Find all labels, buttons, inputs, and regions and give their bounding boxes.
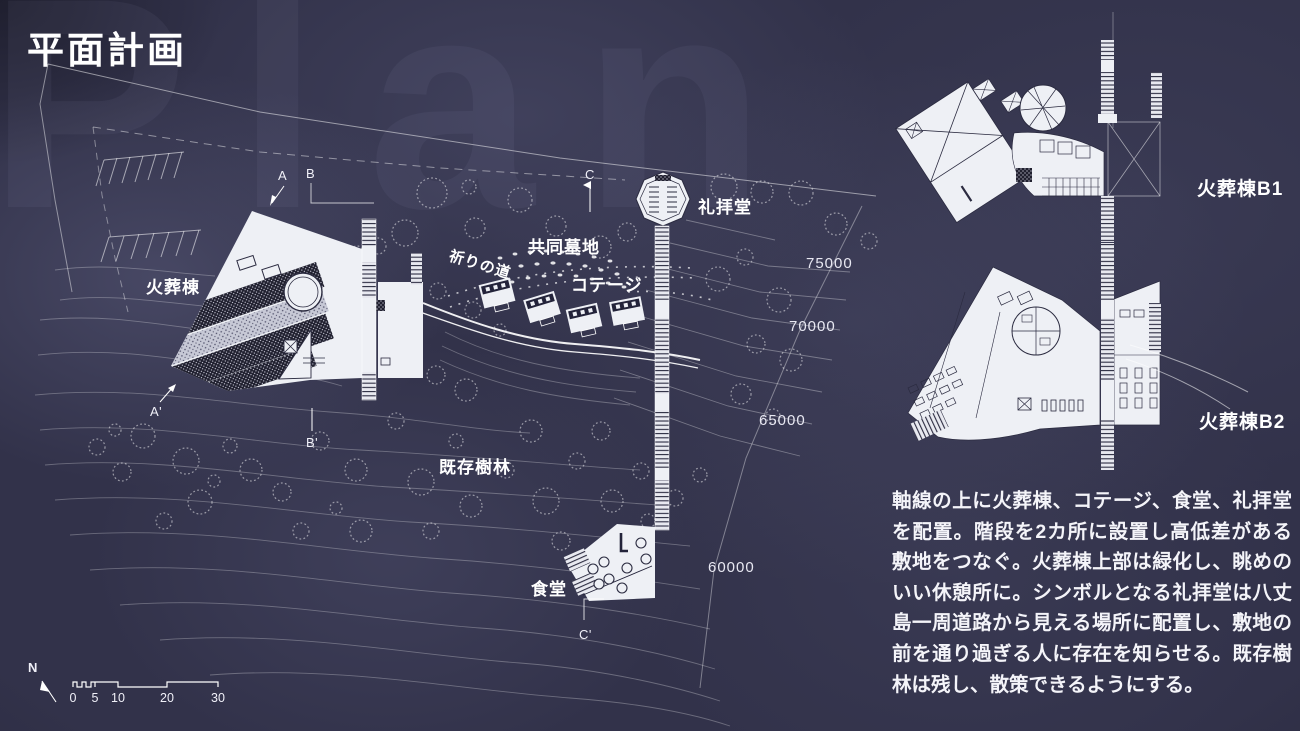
scale-tick-20: 20 — [160, 691, 174, 705]
label-existing-forest: 既存樹林 — [439, 457, 511, 477]
contour-70000: 70000 — [789, 318, 836, 335]
scale-tick-10: 10 — [111, 691, 125, 705]
site-boundary-lines — [40, 64, 876, 688]
contour-75000: 75000 — [806, 255, 853, 272]
section-c: C — [585, 167, 595, 182]
label-prayer-path: 祈りの道 — [447, 247, 513, 283]
contour-60000: 60000 — [708, 559, 755, 576]
crematorium-building — [141, 211, 423, 421]
scale-tick-0: 0 — [70, 691, 77, 705]
section-b: B — [306, 166, 315, 181]
label-crematorium: 火葬棟 — [146, 277, 200, 297]
chapel-building — [636, 172, 690, 226]
north-arrow: N — [28, 660, 56, 702]
floor-plan-b1 — [896, 12, 1162, 242]
label-cemetery: 共同墓地 — [528, 237, 600, 257]
scale-bar: 0 5 10 20 30 — [70, 682, 225, 705]
label-dining: 食堂 — [531, 579, 567, 599]
contour-65000: 65000 — [759, 412, 806, 429]
parking-lot — [96, 152, 201, 262]
section-a-prime: A' — [150, 404, 162, 419]
scale-tick-30: 30 — [211, 691, 225, 705]
dining-hall-building — [564, 524, 655, 601]
axis-stair — [655, 226, 669, 530]
page-title: 平面計画 — [27, 20, 187, 74]
label-chapel: 礼拝堂 — [698, 197, 752, 217]
section-a: A — [278, 168, 287, 183]
label-cottage: コテージ — [571, 276, 643, 295]
section-c-prime: C' — [579, 627, 592, 642]
scale-tick-5: 5 — [92, 691, 99, 705]
label-b2: 火葬棟B2 — [1199, 410, 1285, 433]
label-b1: 火葬棟B1 — [1197, 177, 1283, 200]
north-label: N — [28, 660, 38, 675]
floor-plan-b2 — [908, 243, 1248, 470]
contour-labels: 75000 70000 65000 60000 — [708, 255, 853, 576]
section-b-prime: B' — [306, 435, 318, 450]
presentation-slide: Plan 平面計画 — [0, 0, 1300, 731]
description-text: 軸線の上に火葬棟、コテージ、食堂、礼拝堂を配置。階段を2カ所に設置し高低差がある… — [892, 486, 1292, 700]
